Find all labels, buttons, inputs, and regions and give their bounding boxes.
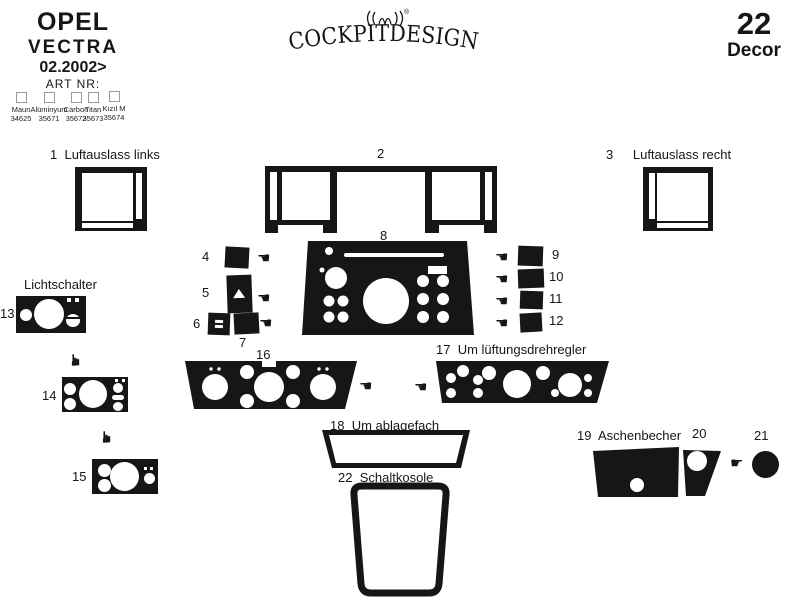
button-hole	[630, 478, 644, 492]
display-cutout	[428, 266, 447, 274]
part-number: 2	[377, 146, 384, 161]
decor-label: Decor	[712, 41, 796, 60]
part-19-shape	[593, 447, 679, 497]
part-number: 1	[50, 147, 57, 162]
vehicle-year: 02.2002>	[8, 59, 138, 77]
part-16-label: 16	[256, 347, 270, 362]
cockpitdesign-logo: ® COCKPITDESIGN	[278, 4, 492, 66]
button-hole	[584, 389, 592, 397]
part-name: Um lüftungsdrehregler	[458, 342, 587, 357]
part-number: 10	[549, 269, 563, 284]
knob-hole	[202, 374, 228, 400]
pointing-hand-icon: ☚	[257, 291, 270, 306]
part-11-label: 11	[549, 291, 563, 306]
button-hole	[482, 366, 496, 380]
part-12-label: 12	[549, 313, 563, 328]
part-3-shape	[643, 167, 713, 231]
part-9-label: 9	[552, 247, 559, 262]
vent-opening	[82, 173, 133, 221]
decor-count: 22	[712, 8, 796, 39]
part-20-shape	[683, 448, 721, 496]
button-hole	[417, 275, 429, 287]
frame-bar	[265, 166, 270, 225]
button-hole	[64, 398, 76, 410]
part-name: Aschenbecher	[598, 428, 681, 443]
part-11-shape	[520, 291, 544, 310]
vent-slot	[82, 223, 133, 228]
led-hole	[325, 367, 328, 370]
part-5-shape	[226, 275, 252, 314]
pointing-hand-icon: ☚	[495, 250, 508, 265]
part-6-label: 6	[193, 316, 200, 331]
knob-hole	[254, 372, 284, 402]
switch-hole	[20, 309, 32, 321]
frame-bar	[265, 166, 497, 172]
part-20-label: 20	[692, 426, 706, 441]
led-hole	[317, 367, 320, 370]
part-number: 21	[754, 428, 768, 443]
part-15-label: 15	[72, 469, 86, 484]
button-hole	[67, 298, 71, 302]
knob-hole	[503, 370, 531, 398]
button-hole	[536, 366, 550, 380]
button-hole	[437, 275, 449, 287]
part-9-shape	[518, 246, 544, 267]
button-hole	[437, 293, 449, 305]
part-19-label: 19 Aschenbecher	[577, 428, 681, 443]
vehicle-make: OPEL	[8, 8, 138, 37]
part-14-label: 14	[42, 388, 56, 403]
part-17-shape	[432, 361, 609, 403]
knob-hole	[79, 380, 107, 408]
button-hole	[286, 394, 300, 408]
part-7-shape	[233, 312, 259, 334]
button-hole	[457, 365, 469, 377]
part-number: 7	[239, 335, 246, 350]
part-8-shape	[302, 239, 474, 336]
button-hole	[144, 473, 155, 484]
part-22-shape	[346, 481, 454, 598]
part-13-label: 13	[0, 306, 14, 321]
part-number: 14	[42, 388, 56, 403]
button-hole	[320, 268, 325, 273]
pointing-hand-up-icon: ☛	[100, 430, 116, 444]
part-1-label: 1 Luftauslass links	[50, 147, 160, 162]
part-13-shape	[16, 296, 86, 333]
finish-number: 35674	[98, 113, 130, 122]
part-number: 13	[0, 306, 14, 321]
cd-slot	[344, 253, 444, 257]
part-number: 3	[606, 147, 613, 162]
tab-notch	[262, 361, 276, 367]
button-hole	[122, 379, 125, 382]
logo-wordmark: COCKPITDESIGN	[287, 21, 481, 56]
part-number: 6	[193, 316, 200, 331]
vehicle-brand-block: OPEL VECTRA 02.2002> ART NR:	[8, 8, 138, 92]
pointing-hand-icon: ☚	[495, 316, 508, 331]
tray-opening	[329, 435, 463, 463]
part-number: 19	[577, 428, 591, 443]
led-hole	[217, 367, 220, 370]
part-5-label: 5	[202, 285, 209, 300]
decor-count-block: 22 Decor	[712, 8, 796, 60]
part-21-shape	[752, 451, 779, 478]
button-hole	[473, 375, 483, 385]
volume-knob-hole	[363, 278, 409, 324]
checkbox	[88, 92, 99, 103]
dial-hole	[66, 314, 80, 327]
button-hole	[150, 467, 153, 470]
part-12-shape	[520, 312, 543, 332]
finish-name: Kızıl M	[98, 104, 130, 113]
frame-bar	[480, 172, 485, 220]
button-hole	[64, 383, 76, 395]
part-16-shape	[185, 361, 357, 409]
part-21-label: 21	[754, 428, 768, 443]
frame-foot	[265, 225, 278, 233]
pointing-hand-icon: ☚	[495, 272, 508, 287]
part-2-shape	[265, 166, 497, 233]
button-hole	[417, 311, 429, 323]
pointing-hand-up-icon: ☛	[69, 353, 85, 367]
button-hole	[584, 374, 592, 382]
part-17-label: 17 Um lüftungsdrehregler	[436, 342, 586, 357]
part-number: 15	[72, 469, 86, 484]
part-number: 12	[549, 313, 563, 328]
button-hole	[551, 389, 559, 397]
frame-foot	[425, 225, 439, 233]
dial-slit	[65, 317, 81, 319]
knob-hole	[687, 451, 707, 471]
button-hole	[325, 247, 333, 255]
part-15-shape	[92, 459, 158, 494]
button-hole	[240, 394, 254, 408]
part-4-shape	[224, 246, 249, 268]
part-18-shape	[322, 430, 470, 468]
knob-hole	[558, 373, 582, 397]
part-number: 9	[552, 247, 559, 262]
part-number: 4	[202, 249, 209, 264]
led-hole	[209, 367, 212, 370]
part-number: 11	[549, 291, 563, 306]
frame-foot	[484, 225, 497, 233]
part-name: Luftauslass recht	[633, 147, 731, 162]
button-hole	[98, 479, 111, 492]
part-7-label: 7	[239, 335, 246, 350]
pointing-hand-icon: ☛	[730, 456, 743, 471]
vehicle-model: VECTRA	[8, 37, 138, 59]
switch-glyph	[215, 325, 223, 328]
part-13-name: Lichtschalter	[24, 277, 97, 292]
vent-slot	[136, 173, 142, 219]
pointing-hand-icon: ☚	[414, 380, 427, 395]
pointing-hand-icon: ☚	[259, 316, 272, 331]
frame-foot	[323, 225, 337, 233]
pointing-hand-icon: ☚	[495, 294, 508, 309]
part-10-label: 10	[549, 269, 563, 284]
pointing-hand-icon: ☚	[359, 379, 372, 394]
button-hole	[446, 373, 456, 383]
button-hole	[113, 383, 123, 393]
instruction-sheet: OPEL VECTRA 02.2002> ART NR: Maun 34625 …	[0, 0, 800, 598]
registered-mark: ®	[404, 8, 410, 16]
button-hole	[286, 365, 300, 379]
frame-bar	[330, 166, 337, 225]
button-hole	[473, 388, 483, 398]
button-hole	[417, 293, 429, 305]
button-hole	[324, 312, 335, 323]
checkbox	[109, 91, 120, 102]
button-hole	[338, 312, 349, 323]
switch-glyph	[215, 320, 223, 323]
console-outline	[354, 486, 446, 593]
part-number: 5	[202, 285, 209, 300]
button-hole	[144, 467, 147, 470]
button-hole	[338, 296, 349, 307]
frame-bar	[492, 166, 497, 225]
part-1-shape	[75, 167, 147, 231]
knob-hole	[310, 374, 336, 400]
part-10-shape	[518, 269, 545, 289]
triangle-icon	[233, 289, 245, 298]
checkbox	[44, 92, 55, 103]
part-2-label: 2	[377, 146, 384, 161]
part-4-label: 4	[202, 249, 209, 264]
button-hole	[446, 388, 456, 398]
button-hole	[240, 365, 254, 379]
vent-slot	[649, 173, 655, 219]
pointing-hand-icon: ☚	[257, 251, 270, 266]
knob-hole	[325, 267, 347, 289]
button-hole	[437, 311, 449, 323]
frame-bar	[277, 172, 282, 220]
button-hole	[75, 298, 79, 302]
vent-opening	[657, 173, 708, 221]
dial-hole	[112, 395, 124, 400]
part-number: 17	[436, 342, 450, 357]
button-hole	[324, 296, 335, 307]
checkbox	[16, 92, 27, 103]
art-number-label: ART NR:	[8, 78, 138, 92]
part-3-label: 3 Luftauslass recht	[606, 147, 731, 162]
part-name: Lichtschalter	[24, 277, 97, 292]
part-number: 16	[256, 347, 270, 362]
knob-hole	[110, 462, 139, 491]
knob-hole	[34, 299, 64, 329]
part-name: Luftauslass links	[64, 147, 159, 162]
finish-option-kizil: Kızıl M 35674	[98, 91, 130, 122]
part-14-shape	[62, 377, 128, 412]
button-hole	[115, 379, 118, 382]
part-6-shape	[208, 313, 231, 336]
part-number: 20	[692, 426, 706, 441]
frame-bar	[425, 166, 432, 225]
button-hole	[113, 402, 123, 411]
vent-slot	[657, 223, 708, 228]
